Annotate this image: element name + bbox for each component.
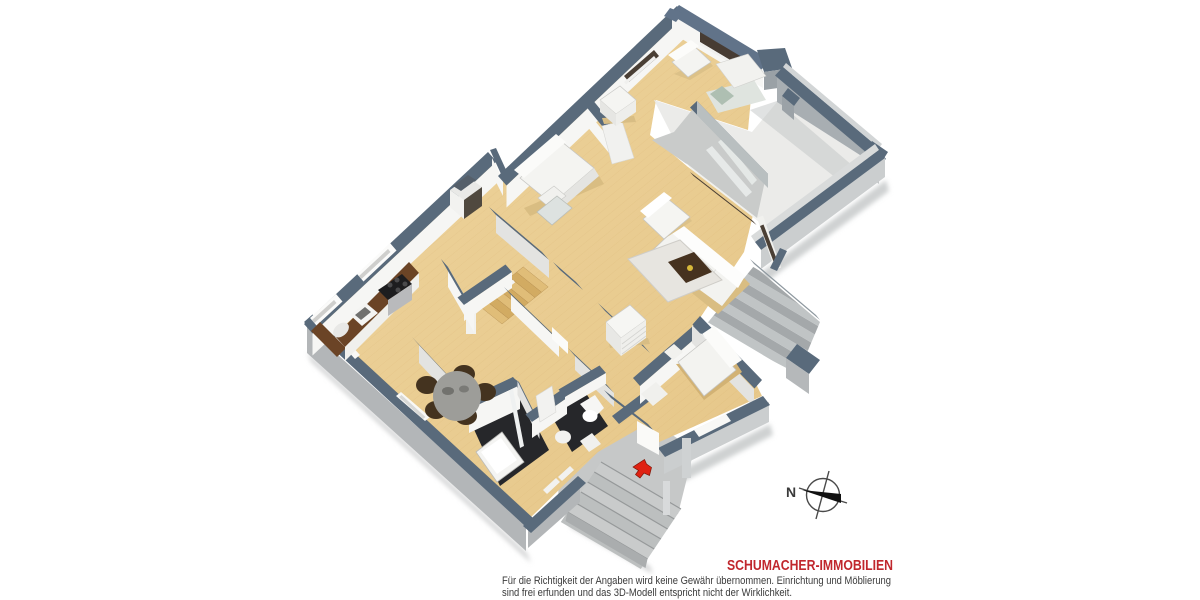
svg-text:Für die Richtigkeit der Angabe: Für die Richtigkeit der Angaben wird kei…: [502, 575, 891, 587]
svg-text:SCHUMACHER-IMMOBILIEN: SCHUMACHER-IMMOBILIEN: [727, 558, 893, 574]
svg-text:N: N: [786, 484, 796, 500]
svg-text:sind frei erfunden und das 3D-: sind frei erfunden und das 3D-Modell ent…: [502, 587, 792, 599]
